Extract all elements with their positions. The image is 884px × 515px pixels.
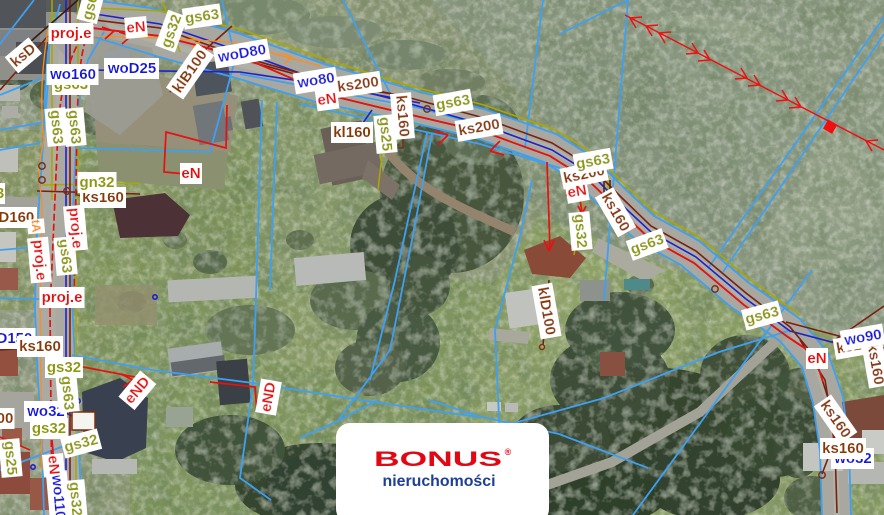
svg-text:eN: eN bbox=[181, 165, 200, 182]
svg-text:proj.e: proj.e bbox=[29, 239, 49, 281]
svg-text:eN: eN bbox=[126, 18, 147, 37]
svg-text:eN: eN bbox=[316, 90, 337, 110]
svg-text:gs32: gs32 bbox=[571, 213, 591, 249]
svg-text:kl160: kl160 bbox=[333, 124, 371, 141]
svg-text:eN: eN bbox=[566, 181, 588, 201]
svg-text:00: 00 bbox=[0, 410, 13, 427]
svg-text:proj.e: proj.e bbox=[42, 289, 83, 306]
svg-text:gs63: gs63 bbox=[47, 109, 67, 145]
svg-text:gs32: gs32 bbox=[32, 420, 66, 437]
svg-text:®: ® bbox=[505, 447, 512, 457]
svg-text:ks160: ks160 bbox=[19, 338, 61, 355]
svg-text:gs32: gs32 bbox=[47, 359, 81, 376]
svg-text:gs32: gs32 bbox=[66, 481, 86, 515]
svg-text:gs63: gs63 bbox=[65, 109, 85, 145]
svg-text:BONUS: BONUS bbox=[374, 448, 502, 471]
svg-text:gn32: gn32 bbox=[79, 174, 114, 191]
svg-text:3: 3 bbox=[0, 185, 4, 202]
svg-text:wo160: wo160 bbox=[49, 66, 96, 83]
svg-text:proj.e: proj.e bbox=[65, 207, 85, 249]
svg-text:ks160: ks160 bbox=[82, 189, 124, 206]
svg-text:eN: eN bbox=[807, 350, 826, 367]
svg-text:wo110: wo110 bbox=[48, 473, 69, 515]
svg-text:ks160: ks160 bbox=[392, 95, 413, 138]
svg-text:wo32: wo32 bbox=[26, 403, 65, 420]
svg-text:gs25: gs25 bbox=[1, 440, 21, 476]
svg-text:nieruchomości: nieruchomości bbox=[383, 473, 496, 490]
svg-text:ks160: ks160 bbox=[822, 440, 864, 457]
svg-text:tA: tA bbox=[28, 219, 43, 233]
svg-text:woD25: woD25 bbox=[107, 60, 156, 77]
svg-text:proj.e: proj.e bbox=[51, 25, 92, 42]
svg-text:gs25: gs25 bbox=[376, 116, 396, 152]
svg-text:eN: eN bbox=[44, 455, 63, 476]
svg-text:gs63: gs63 bbox=[58, 375, 78, 411]
